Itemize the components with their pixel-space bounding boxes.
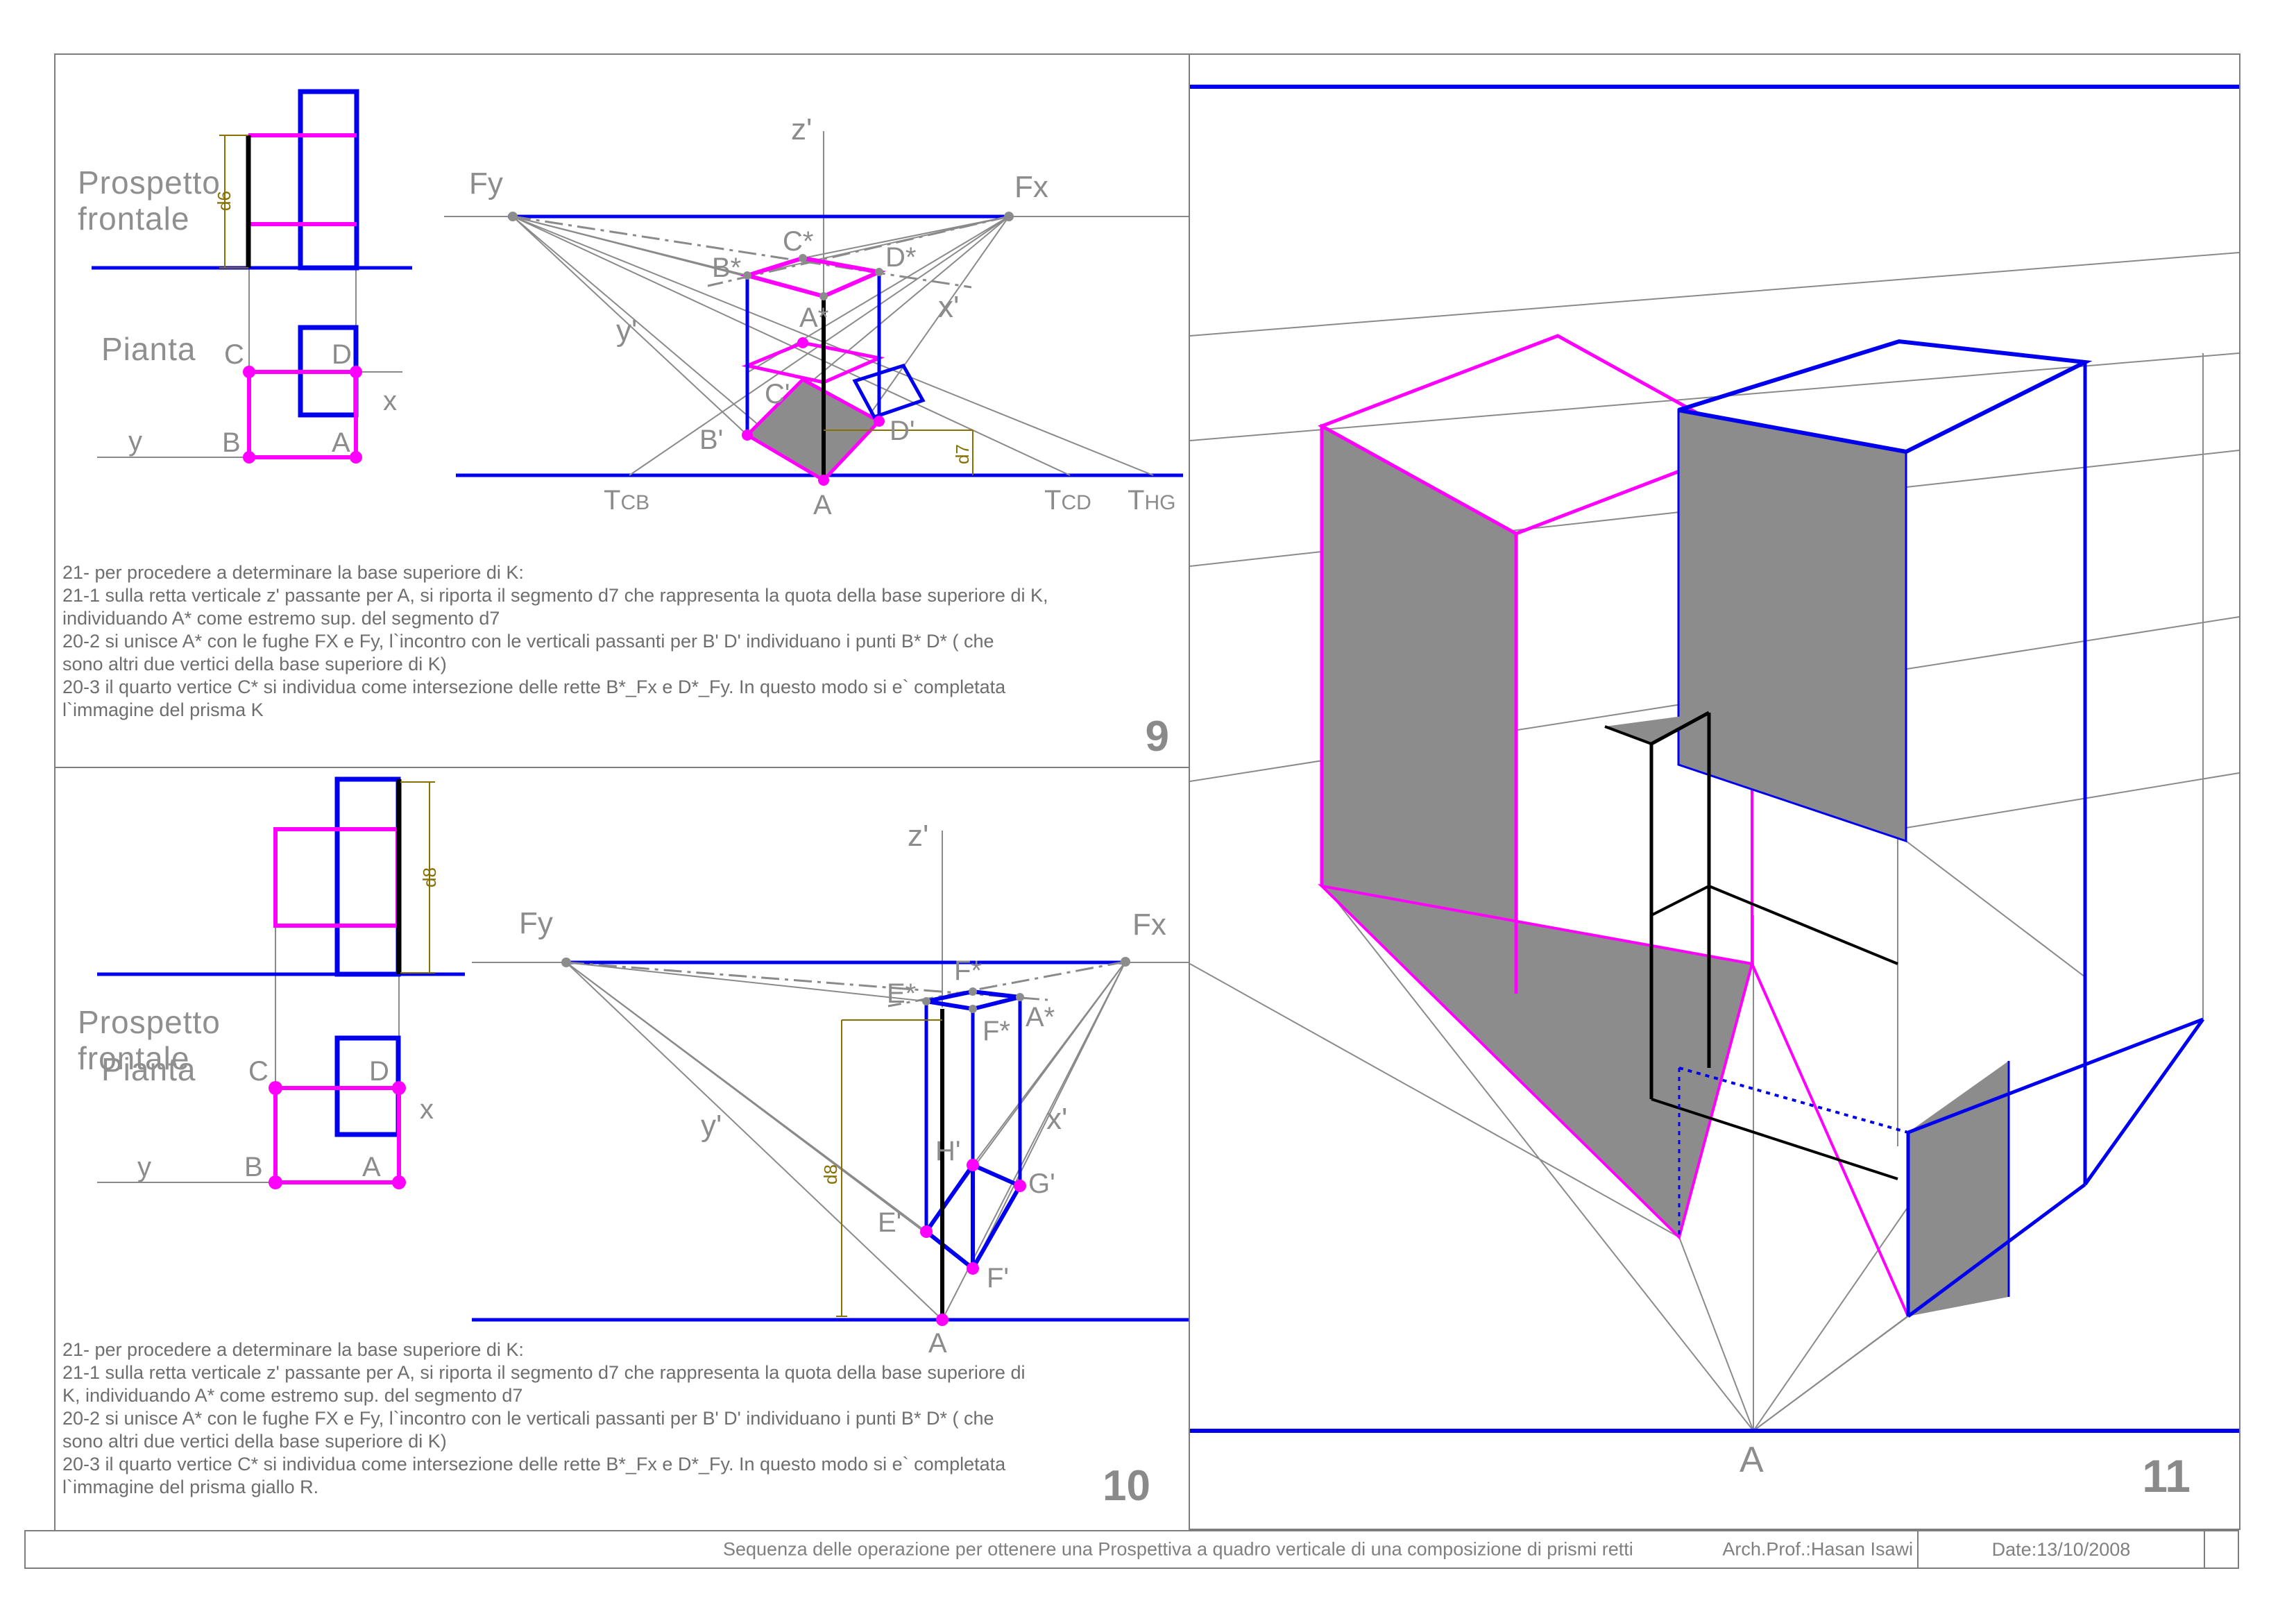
- blue-lower-prism: [1679, 1019, 2203, 1316]
- panel-10: d8 C D B A x y: [54, 767, 1190, 1531]
- A-star-label: A*: [799, 303, 828, 333]
- panel11-number: 11: [2142, 1450, 2191, 1502]
- G-prime-label: G': [1028, 1169, 1055, 1199]
- C-prime-label: C': [765, 379, 790, 409]
- B-star-label: B*: [712, 253, 741, 283]
- y-prime-label: y': [616, 314, 637, 348]
- pianta-D-label: D: [369, 1056, 389, 1087]
- Fy-label: Fy: [469, 167, 503, 201]
- pianta-D-label: D: [332, 339, 352, 370]
- panel9-number: 9: [1146, 712, 1169, 761]
- x-prime-label: x': [1046, 1102, 1067, 1136]
- E-prime-label: E': [878, 1207, 901, 1238]
- caption-line: 20-3 il quarto vertice C* si individua c…: [62, 676, 1173, 699]
- pianta-C-label: C: [224, 339, 244, 370]
- Fx-label: Fx: [1132, 908, 1166, 942]
- pianta-B-label: B: [222, 427, 241, 458]
- Tcd-label: TCD: [1044, 485, 1091, 516]
- caption-line: 21- per procedere a determinare la base …: [62, 561, 1173, 584]
- axis-y-label: y: [137, 1152, 151, 1182]
- caption-line: 21-1 sulla retta verticale z' passante p…: [62, 584, 1173, 607]
- panel-11: A 11: [1189, 53, 2240, 1530]
- z-axis-label: z': [908, 819, 928, 853]
- z-axis-label: z': [791, 112, 812, 146]
- prospetto-title: Prospetto frontale: [78, 164, 221, 237]
- panel11-drawing: A: [1190, 55, 2239, 1529]
- A-star-label: A*: [1026, 1002, 1055, 1033]
- plan-projection-shaded: [1322, 886, 1752, 1237]
- title-block-date-cell: Date:13/10/2008: [1919, 1531, 2205, 1567]
- title-block-main-cell: Sequenza delle operazione per ottenere u…: [26, 1531, 1919, 1567]
- Thg-label: THG: [1128, 485, 1175, 516]
- pianta-title: Pianta: [101, 331, 196, 367]
- B-prime-label: B': [699, 425, 723, 455]
- pianta-B-label: B: [244, 1152, 263, 1182]
- Fy-label: Fy: [519, 906, 553, 940]
- y-prime-label: y': [701, 1109, 722, 1143]
- caption-line: sono altri due vertici della base superi…: [62, 1430, 1173, 1453]
- drawing-sheet: d6 C D B A x y: [0, 0, 2296, 1623]
- caption-line: 21- per procedere a determinare la base …: [62, 1339, 1173, 1361]
- A-ground-label: A: [813, 490, 832, 520]
- H-prime-label: H': [935, 1136, 961, 1166]
- panel9-caption: 21- per procedere a determinare la base …: [62, 561, 1173, 722]
- F-star-top-label: F*: [954, 955, 982, 986]
- panel-9: d6 C D B A x y: [54, 53, 1190, 768]
- Tcb-label: TCB: [604, 485, 649, 516]
- A-station-label: A: [1740, 1440, 1764, 1480]
- E-star-label: E*: [887, 978, 916, 1009]
- title-block: Sequenza delle operazione per ottenere u…: [24, 1530, 2239, 1569]
- axis-y-label: y: [128, 426, 142, 457]
- axis-x-label: x: [420, 1094, 434, 1125]
- panel10-caption: 21- per procedere a determinare la base …: [62, 1339, 1173, 1499]
- sheet-date: Date:13/10/2008: [1992, 1539, 2131, 1561]
- caption-line: sono altri due vertici della base superi…: [62, 653, 1173, 676]
- F-prime-label: F': [987, 1263, 1009, 1293]
- panel10-number: 10: [1103, 1461, 1150, 1511]
- C-star-label: C*: [783, 226, 813, 257]
- caption-line: l`immagine del prisma K: [62, 699, 1173, 722]
- caption-line: individuando A* come estremo sup. del se…: [62, 607, 1173, 630]
- caption-line: 20-2 si unisce A* con le fughe FX e Fy, …: [62, 1407, 1173, 1430]
- D-prime-label: D': [890, 416, 915, 446]
- panel9-perspective-drawing: d7 z' Fy Fx y' x' B* C* D*: [444, 112, 1189, 520]
- caption-line: l`immagine del prisma giallo R.: [62, 1476, 1173, 1499]
- pianta-A-label: A: [332, 427, 350, 458]
- dim-d8-label: d8: [419, 867, 440, 887]
- axis-x-label: x: [383, 386, 397, 416]
- sheet-author: Arch.Prof.:Hasan Isawi: [1722, 1539, 1913, 1561]
- caption-line: K, individuando A* come estremo sup. del…: [62, 1384, 1173, 1407]
- dim-d8-persp-label: d8: [820, 1164, 841, 1184]
- caption-line: 20-2 si unisce A* con le fughe FX e Fy, …: [62, 630, 1173, 653]
- Fx-label: Fx: [1014, 170, 1048, 204]
- title-block-empty-cell: [2205, 1531, 2238, 1567]
- caption-line: 20-3 il quarto vertice C* si individua c…: [62, 1453, 1173, 1476]
- pianta-C-label: C: [248, 1056, 269, 1087]
- pianta-title: Pianta: [101, 1051, 196, 1087]
- sheet-title: Sequenza delle operazione per ottenere u…: [723, 1539, 1633, 1561]
- pianta-A-label: A: [362, 1152, 381, 1182]
- blue-prism: [1678, 341, 2085, 1184]
- F-star-low-label: F*: [983, 1016, 1010, 1046]
- D-star-label: D*: [885, 242, 916, 273]
- x-prime-label: x': [938, 290, 959, 324]
- caption-line: 21-1 sulla retta verticale z' passante p…: [62, 1361, 1173, 1384]
- dim-d7-label: d7: [952, 444, 973, 464]
- panel10-perspective-drawing: d8 z' Fy Fx y' x' E* F*: [472, 819, 1189, 1359]
